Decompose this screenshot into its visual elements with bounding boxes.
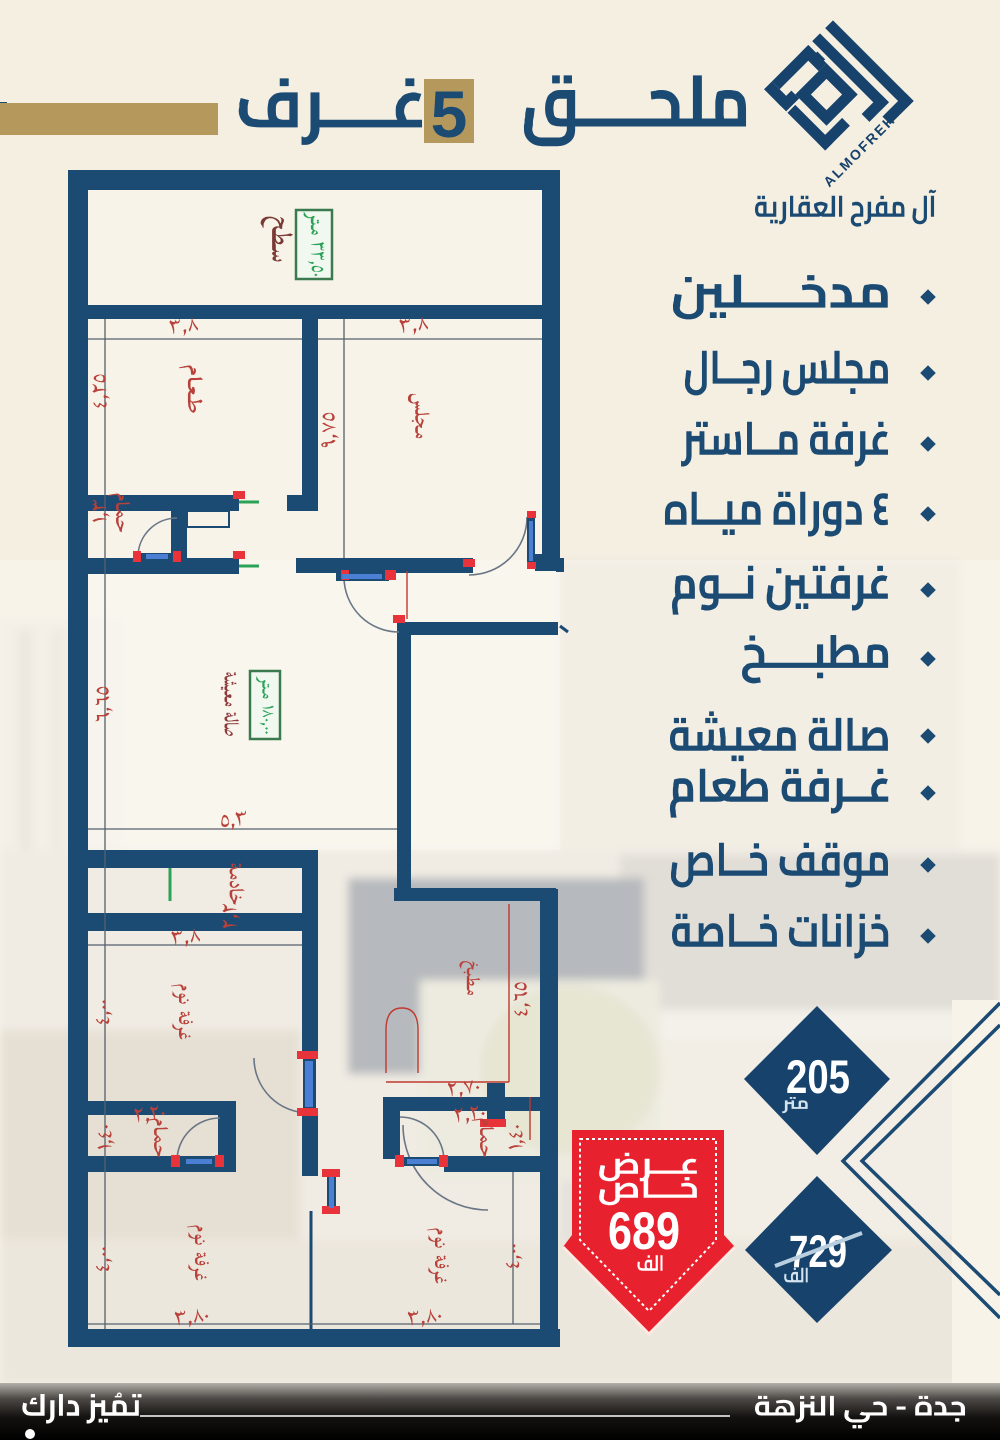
svg-text:205: 205 <box>786 1050 850 1103</box>
svg-text:5: 5 <box>431 77 468 151</box>
svg-text:689: 689 <box>608 1202 680 1261</box>
